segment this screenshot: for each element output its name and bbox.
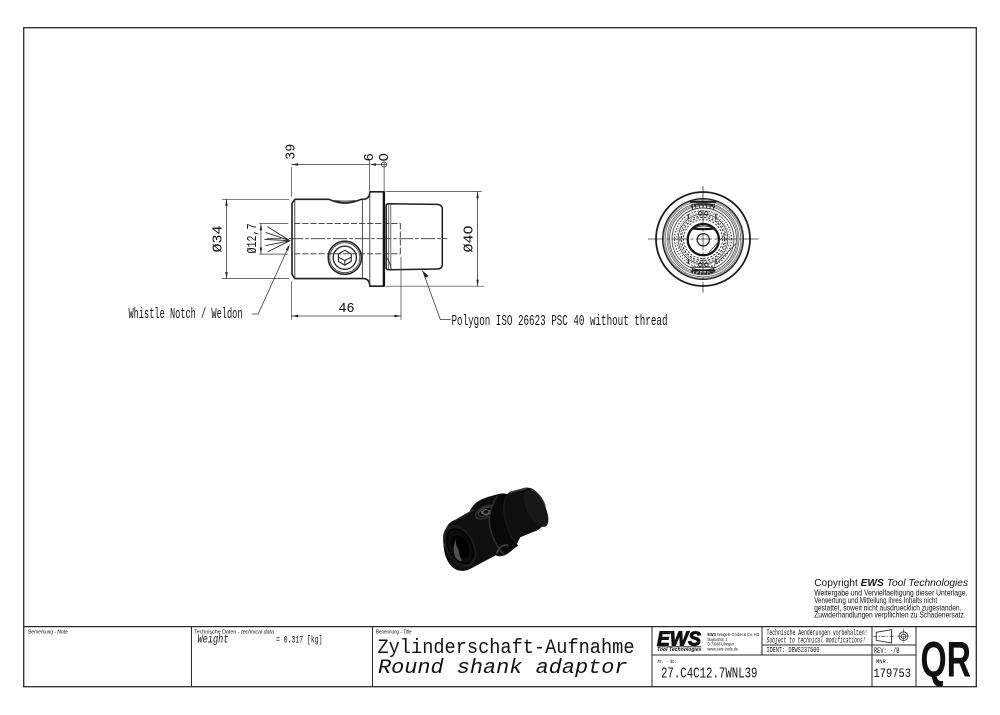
svg-text:Ø12,7: Ø12,7: [245, 224, 261, 254]
svg-text:Round shank adaptor: Round shank adaptor: [378, 657, 628, 680]
svg-text:O: O: [377, 153, 393, 161]
svg-text:IDENT: DEWS237500: IDENT: DEWS237500: [767, 647, 820, 655]
svg-text:QR: QR: [921, 630, 972, 687]
svg-text:Copyright EWS Tool Technologie: Copyright EWS Tool Technologies: [814, 578, 968, 589]
svg-text:46: 46: [339, 301, 355, 317]
svg-text:Nr. - No.: Nr. - No.: [658, 658, 677, 665]
svg-text:= 0.317 [kg]: = 0.317 [kg]: [276, 635, 323, 647]
svg-text:Zuwiderhandlungen verpflichten: Zuwiderhandlungen verpflichten zu Schade…: [814, 611, 965, 620]
svg-text:www.ews-tools.de: www.ews-tools.de: [708, 646, 739, 652]
svg-text:Whistle Notch / Weldon: Whistle Notch / Weldon: [129, 307, 243, 323]
svg-text:179753: 179753: [874, 667, 912, 681]
svg-text:Ø34: Ø34: [211, 226, 227, 253]
svg-text:Subject to technical modificat: Subject to technical modifications!: [767, 637, 866, 646]
svg-text:39: 39: [284, 144, 300, 160]
svg-text:Benennung - Title: Benennung - Title: [376, 629, 412, 635]
svg-text:6: 6: [362, 153, 378, 161]
svg-text:MNR.: MNR.: [876, 658, 889, 665]
svg-text:Tool Technologies: Tool Technologies: [657, 647, 702, 653]
svg-text:Ø4O: Ø4O: [462, 226, 478, 253]
svg-text:Weight: Weight: [198, 634, 229, 647]
svg-text:Bemerkung - Note: Bemerkung - Note: [28, 629, 68, 635]
svg-text:Polygon ISO 26623 PSC 40 witho: Polygon ISO 26623 PSC 40 without thread: [452, 314, 668, 330]
svg-text:REV: -/B: REV: -/B: [874, 646, 900, 656]
svg-text:27.C4C12.7WNL39: 27.C4C12.7WNL39: [661, 665, 758, 682]
